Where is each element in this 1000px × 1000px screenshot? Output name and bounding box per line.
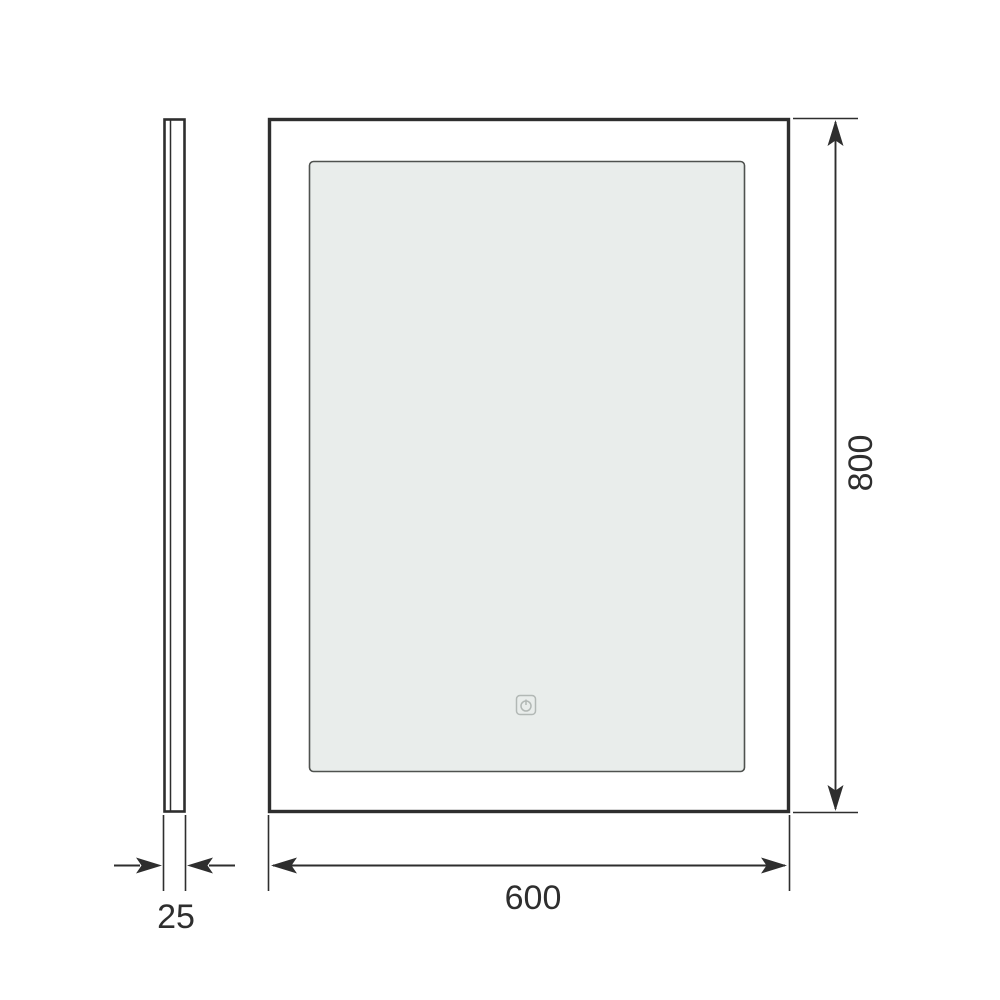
width-dimension-label: 600: [505, 879, 562, 917]
mirror-lit-area: [310, 162, 745, 772]
side-view: [165, 120, 185, 812]
side-view-outline: [165, 120, 185, 812]
technical-drawing-canvas: 800 600 25: [0, 0, 1000, 1000]
mirror-dimension-drawing: 800 600 25: [0, 0, 1000, 1000]
depth-dimension-arrows: [136, 858, 213, 874]
depth-dimension: [114, 815, 235, 891]
depth-dimension-label: 25: [157, 898, 195, 936]
height-dimension-label: 800: [842, 435, 880, 492]
